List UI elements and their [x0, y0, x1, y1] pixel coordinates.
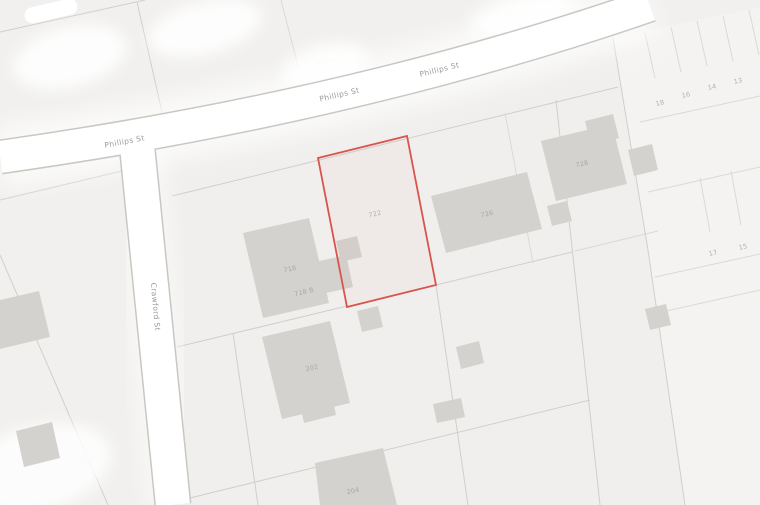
parcel-map-viewport[interactable]: Phillips St Phillips St Phillips St Craw…: [0, 0, 760, 505]
parcel-map-canvas[interactable]: Phillips St Phillips St Phillips St Craw…: [0, 0, 760, 505]
